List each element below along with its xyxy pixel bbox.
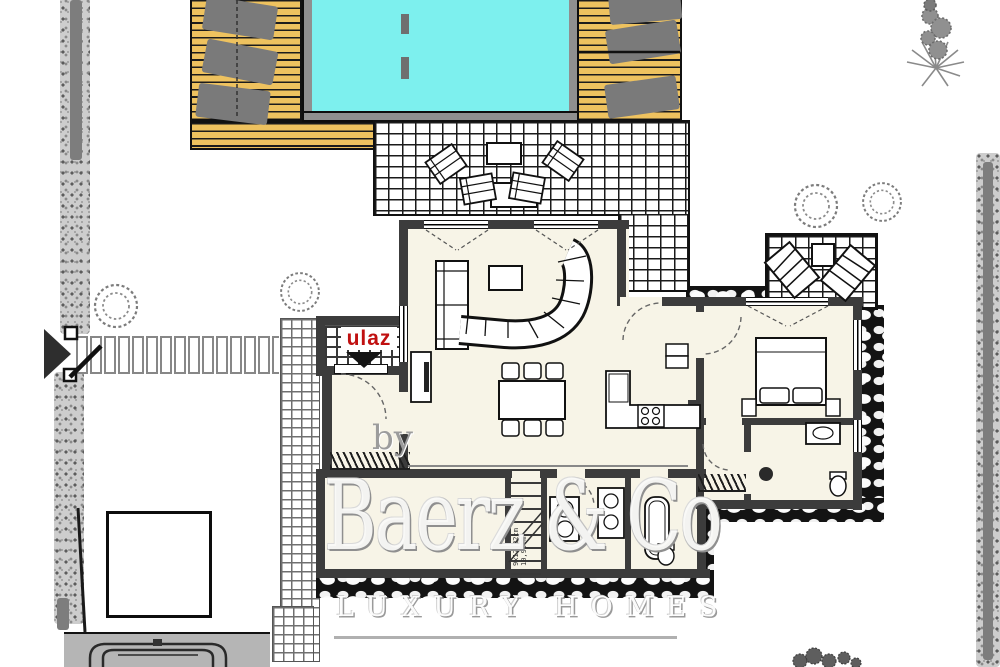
paver-walkway [76,336,279,374]
bush [863,183,901,221]
wall [316,469,325,578]
deck-right [577,0,682,121]
entrance-arrow-icon [346,352,382,368]
door-gap [696,312,704,358]
deck-left [190,0,302,121]
hedge-core [57,598,69,630]
shrub-cluster [793,648,861,667]
hedge-core [70,0,82,160]
wall [697,500,862,509]
entrance-marker: ulaz [334,328,404,350]
window [853,420,862,452]
door-gap [557,469,585,478]
house-room-living [399,220,629,478]
wall [697,500,706,578]
stairs-note: 9x17,22cm 10,90 m [513,528,528,566]
brick-patio-main [373,120,690,216]
window [534,220,598,229]
radiator [698,474,746,492]
planter-box [106,511,212,618]
window [853,320,862,370]
radiator [330,452,410,470]
stairs-note-length: 10,90 m [521,528,529,566]
wall [625,477,631,578]
entrance-label: ulaz [341,327,398,350]
swimming-pool [302,0,579,113]
door-gap [706,418,742,425]
window [746,297,828,306]
wall [688,400,704,428]
wall [322,469,512,478]
door-gap [399,392,408,434]
door-gap [620,297,662,306]
floor-plan-canvas: 9x17,22cm 10,90 m [0,0,1000,667]
bush [95,285,137,327]
watermark-divider [334,636,677,639]
driveway [64,632,270,667]
door-gap [640,469,668,478]
wall [617,220,626,306]
hedge-core [983,162,993,660]
hedge-left-lower [54,372,84,624]
bush [795,185,837,227]
bush [281,273,319,311]
wall [316,316,408,325]
hall-floor-line [408,465,688,467]
tile-path-lower [272,606,314,662]
window [424,220,488,229]
palm-plant [907,0,964,86]
